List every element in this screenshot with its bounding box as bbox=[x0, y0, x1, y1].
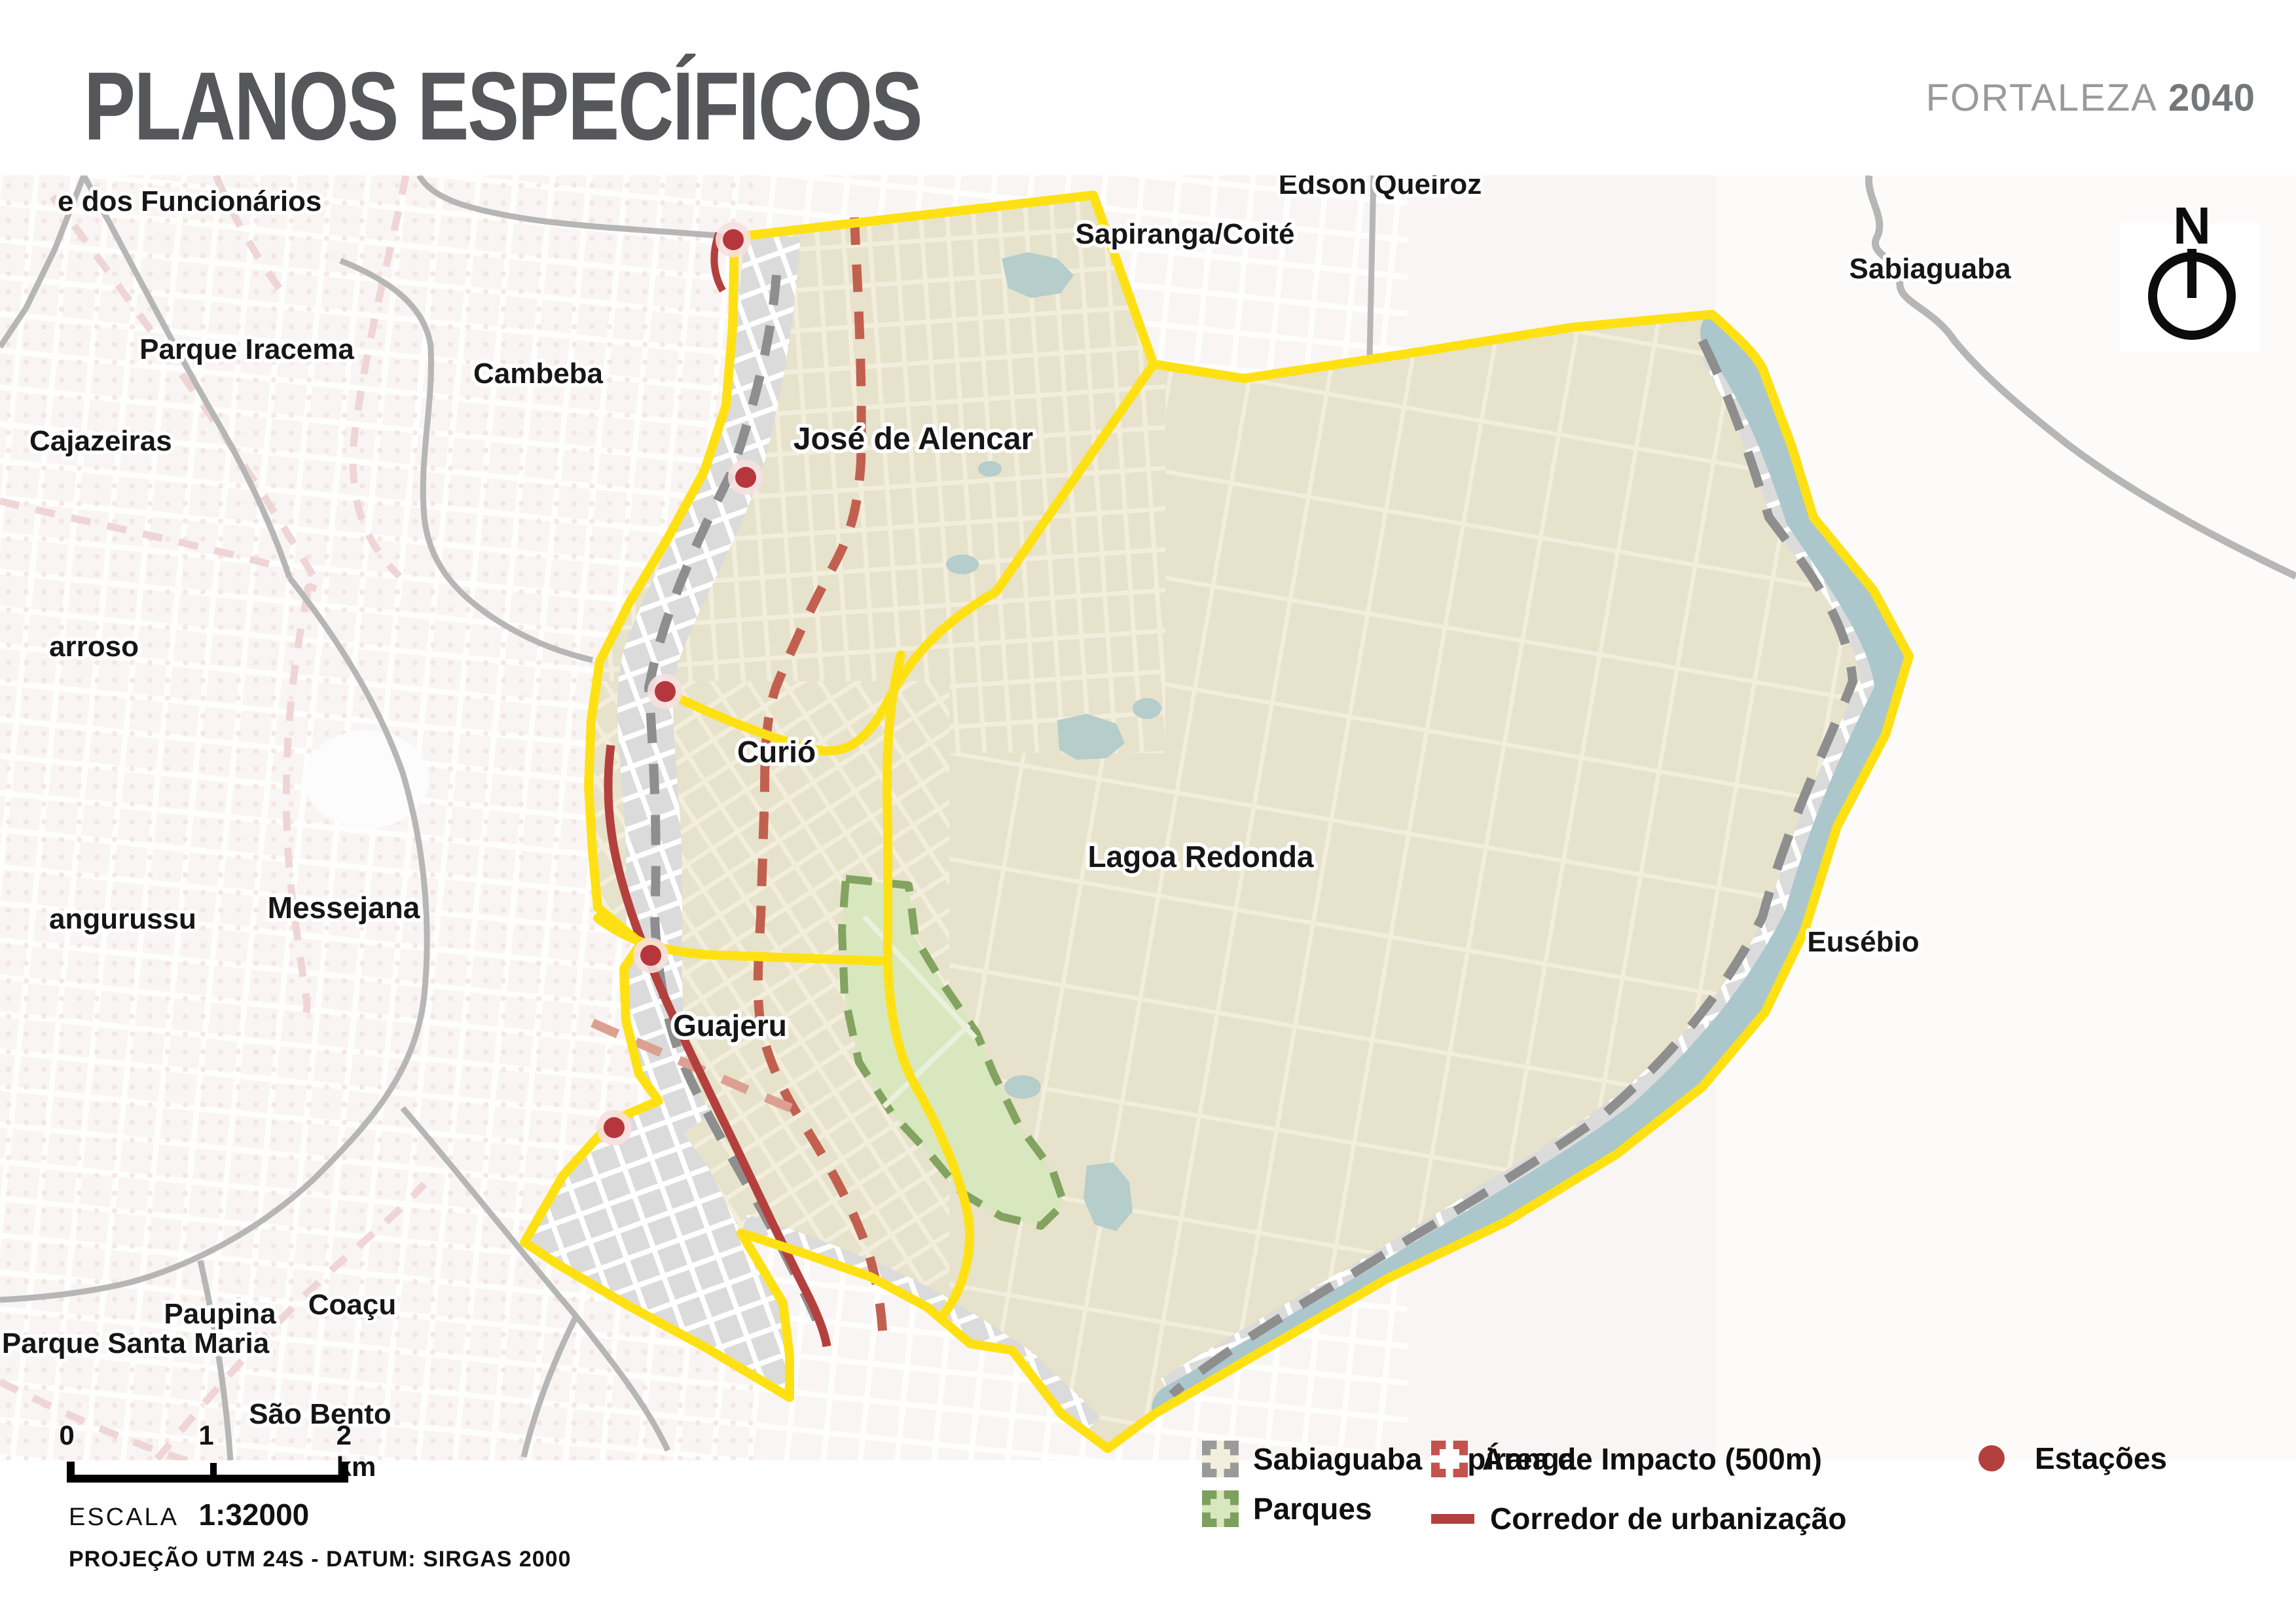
legend-item-area-impacto: Área de Impacto (500m) bbox=[1431, 1441, 1822, 1477]
label-jangurussu: angurussu bbox=[49, 903, 196, 935]
escala-value: 1:32000 bbox=[198, 1498, 309, 1532]
legend-swatch-park-icon bbox=[1202, 1490, 1239, 1527]
label-sapiranga-coite: Sapiranga/Coité bbox=[1076, 218, 1295, 250]
scalebar bbox=[67, 1462, 348, 1483]
scalebar-tick-1: 1 bbox=[198, 1420, 213, 1451]
label-guajeru: Guajeru bbox=[673, 1008, 787, 1043]
escala-label: ESCALA bbox=[69, 1504, 179, 1531]
legend-swatch-station-dot-icon bbox=[1978, 1445, 2005, 1471]
label-edson-queiroz: Edson Queiroz bbox=[1279, 168, 1482, 200]
legend-label-estacoes: Estações bbox=[2035, 1441, 2167, 1476]
label-parque-santa-maria: Parque Santa Maria bbox=[2, 1327, 270, 1359]
label-jose-de-alencar: José de Alencar bbox=[793, 422, 1033, 456]
compass-n-letter: N bbox=[2173, 196, 2211, 255]
brand-logo: FORTALEZA 2040 bbox=[1926, 76, 2255, 120]
messejana-lake bbox=[304, 730, 429, 828]
label-eusebio: Eusébio bbox=[1807, 926, 1919, 958]
legend-swatch-plan-area-icon bbox=[1202, 1441, 1239, 1477]
label-curio: Curió bbox=[737, 735, 816, 769]
brand-fortaleza: FORTALEZA bbox=[1926, 77, 2158, 119]
label-cajazeiras: Cajazeiras bbox=[29, 425, 172, 457]
scalebar-numbers: 0 1 2 km bbox=[67, 1420, 374, 1450]
scalebar-tick-0: 0 bbox=[59, 1420, 74, 1451]
label-cambeba: Cambeba bbox=[473, 358, 604, 390]
label-sabiaguaba: Sabiaguaba bbox=[1850, 253, 2011, 285]
poster-page: e dos Funcionários Parque Iracema Cambeb… bbox=[0, 0, 2296, 1624]
label-messejana: Messejana bbox=[268, 891, 420, 925]
brand-2040: 2040 bbox=[2168, 77, 2255, 119]
label-funcionarios: e dos Funcionários bbox=[58, 185, 321, 217]
label-lagoa-redonda: Lagoa Redonda bbox=[1087, 840, 1313, 874]
legend-item-estacoes: Estações bbox=[1978, 1441, 2167, 1476]
label-barroso: arroso bbox=[49, 631, 139, 663]
legend-item-parques: Parques bbox=[1202, 1490, 1372, 1527]
legend-label-area-impacto: Área de Impacto (500m) bbox=[1482, 1441, 1822, 1477]
scale-text: ESCALA 1:32000 bbox=[69, 1497, 309, 1532]
legend-item-corredor: Corredor de urbanização bbox=[1431, 1501, 1846, 1536]
projection-note: PROJEÇÃO UTM 24S - DATUM: SIRGAS 2000 bbox=[69, 1547, 572, 1572]
legend-label-corredor: Corredor de urbanização bbox=[1490, 1501, 1846, 1536]
label-parque-iracema: Parque Iracema bbox=[139, 333, 354, 365]
label-paupina: Paupina bbox=[164, 1298, 276, 1330]
legend-label-parques: Parques bbox=[1253, 1491, 1372, 1526]
legend-swatch-corridor-line-icon bbox=[1431, 1514, 1474, 1524]
page-title: PLANOS ESPECÍFICOS bbox=[84, 51, 1131, 162]
legend-swatch-impact-icon bbox=[1431, 1441, 1468, 1477]
map-canvas: e dos Funcionários Parque Iracema Cambeb… bbox=[0, 0, 2296, 1624]
label-coacu: Coaçu bbox=[308, 1289, 396, 1321]
